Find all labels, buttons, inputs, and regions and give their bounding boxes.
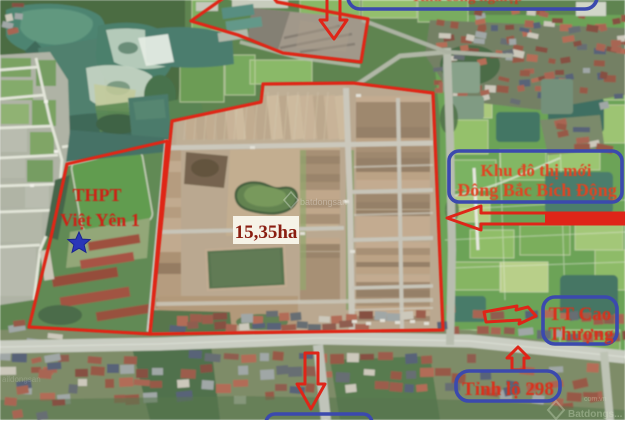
- svg-text:Đông Bắc Bích Động: Đông Bắc Bích Động: [457, 180, 617, 200]
- svg-text:15,35ha: 15,35ha: [235, 222, 298, 243]
- svg-text:Việt Yên 1: Việt Yên 1: [60, 210, 140, 230]
- svg-text:com.vn: com.vn: [584, 396, 607, 403]
- svg-text:TT Cao: TT Cao: [549, 304, 611, 325]
- svg-text:Khu đô thị mới: Khu đô thị mới: [481, 161, 592, 180]
- svg-text:Thượng: Thượng: [548, 324, 614, 345]
- svg-text:Khu công nghiệp: Khu công nghiệp: [413, 0, 522, 5]
- svg-text:Batdongs...: Batdongs...: [568, 409, 623, 420]
- svg-text:aildongsan: aildongsan: [2, 375, 41, 384]
- svg-text:THPT: THPT: [72, 185, 121, 205]
- svg-text:batdongsan: batdongsan: [300, 197, 347, 207]
- svg-text:Tỉnh lộ 298: Tỉnh lộ 298: [462, 379, 554, 400]
